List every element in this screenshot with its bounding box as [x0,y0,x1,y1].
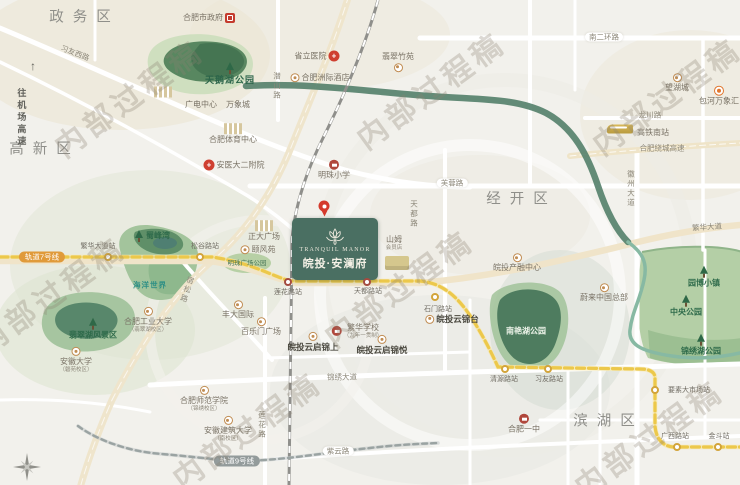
poi-hefei-sports-center: 合肥体育中心 [209,123,257,145]
poi-swan-lake-park: 天鹅湖公园 [205,62,255,86]
poi-anhui-university: 安徽大学（磬苑校区） [59,347,92,373]
road-lianhua-label: 莲花路 [258,411,267,440]
poi-hefei-sports-center-icon [224,123,242,134]
poi-shufengwan: 蜀峰湾 [134,230,170,242]
station-lianhua: 莲花路站 [274,289,302,297]
poi-shufengwan-icon [134,230,144,242]
poi-hefei-normal-university: 合肥师范学院（锦绣校区） [180,386,228,412]
district-gaoxin-label: 高新区 [0,141,80,158]
district-gaoxin: 高新区 [0,141,80,158]
poi-yuanbo-town-label: 园博小镇 [688,279,720,289]
poi-mingzhu-primary-school: 明珠小学 [318,160,350,181]
station-dot-tiandu [363,278,371,286]
poi-provincial-hospital-icon [329,51,340,62]
station-dot-qingyuan [501,365,509,373]
poi-hfut: 合肥工业大学（翡翠湖校区） [124,307,172,333]
station-dot-songgu [196,253,204,261]
poi-hfut-icon [144,307,153,316]
road-ziyun-label: 紫云路 [323,447,354,456]
poi-feicui-zhuyuan-label: 翡翠竹苑 [382,52,414,62]
poi-mingzhu-primary-school-icon [329,160,339,170]
poi-zhengda-plaza-icon [255,220,273,231]
station-dot-fanhua-dadao [104,253,112,261]
poi-hfut-sublabel: （翡翠湖校区） [129,327,168,334]
line7-badge: 轨道7号线 [19,252,65,263]
road-longchuan-label: 龙川路 [639,111,662,120]
poi-feicui-zhuyuan: 翡翠竹苑 [382,52,414,72]
poi-wantou-chanrong-center-icon [513,253,522,262]
sam-store [385,256,409,270]
station-guangxi: 广西路站 [661,433,689,441]
poi-wanghucheng: 望湖城 [665,73,689,93]
poi-central-park: 中央公园 [670,295,702,318]
road-jinxiu-ave-label: 锦绣大道 [327,373,357,382]
poi-hefei-no1-school-icon [519,414,529,424]
poi-hefei-sports-center-label: 合肥体育中心 [209,135,257,145]
station-qingyuan-label: 清源路站 [490,376,518,384]
poi-swan-lake-park-label: 天鹅湖公园 [205,75,255,86]
station-jindou-label: 金斗站 [709,433,730,441]
poi-guangdian-center-label: 广电中心 [185,100,217,110]
poi-mixc: 万象城 [226,100,250,110]
district-zhengwu-label: 政务区 [40,9,120,26]
poi-anhui-jianzhu-university-icon [224,416,233,425]
buildings [154,87,172,98]
station-songgu-label: 松谷路站 [191,243,219,251]
poi-hefei-normal-university-icon [200,386,209,395]
poi-feicui-zhuyuan-icon [394,63,403,72]
station-dot-xiyou [544,365,552,373]
station-songgu: 松谷路站 [191,243,219,251]
station-jindou: 金斗站 [709,433,730,441]
poi-hefei-no1-school: 合肥一中 [508,414,540,435]
road-huizhou-ave: 徽州大道 [627,170,636,208]
toward-airport-arrow: ↑ [30,59,36,73]
poi-nanyan-lake-park: 南艳湖公园 [506,326,546,337]
poi-bailemen-plaza-label: 百乐门广场 [241,327,281,337]
station-xiyou: 习友路站 [535,376,563,384]
poi-jinxiu-lake-park-icon [696,334,706,346]
poi-anhui-university-sublabel: （磬苑校区） [59,367,92,374]
poi-wantou-chanrong-center-label: 皖投产融中心 [493,263,541,273]
property-name-en: TRANQUIL MANOR [299,247,370,253]
district-jingkai-label: 经开区 [477,191,557,208]
station-tiandu-label: 天都路站 [354,288,382,296]
map-canvas[interactable]: TRANQUIL MANOR 皖投·安澜府 内部过程稿内部过程稿内部过程稿内部过… [0,0,740,485]
toward-airport-arrow-label: ↑ [30,59,36,73]
poi-anhui-university-label: 安徽大学 [60,357,92,367]
station-dot-guangxi [673,443,681,451]
road-nanerhuan: 南二环路 [585,33,623,42]
property-logo-icon [324,228,346,245]
train [607,125,633,134]
poi-bailemen-plaza: 百乐门广场 [241,317,281,337]
poi-sam-club-label: 山姆 [386,235,402,245]
poi-provincial-hospital: 省立医院 [295,51,340,62]
poi-bailemen-plaza-icon [257,317,266,326]
poi-mingzhu-plaza-park-label: 明珠广场公园 [228,260,267,268]
road-furong-label: 芙蓉路 [437,179,468,188]
poi-hefei-normal-university-sublabel: （锦绣校区） [187,406,220,413]
station-fanhua-dadao: 繁华大道站 [81,243,116,251]
poi-yunjintai: 皖投云锦台 [425,314,479,324]
poi-hefei-government: 合肥市政府 [183,13,235,23]
road-tiandu-label: 天都路 [410,200,419,229]
road-jinxiu-ave: 锦绣大道 [327,373,357,382]
poi-hefei-no1-school-label: 合肥一中 [508,425,540,435]
poi-hefei-normal-university-label: 合肥师范学院 [180,396,228,406]
poi-shufengwan-label: 蜀峰湾 [146,231,170,241]
poi-central-park-label: 中央公园 [670,308,702,318]
poi-nio-china-hq: 蔚来中国总部 [580,283,628,303]
poi-jinxiu-lake-park: 锦绣湖公园 [681,334,721,357]
poi-yunqi-jinyue: 皖投云启锦悦 [356,335,407,355]
station-dot-lianhua [284,278,292,286]
hefei-south-railway-station: 高铁南站 [637,128,669,138]
station-qingyuan: 清源路站 [490,376,518,384]
poi-anhui-university-icon [71,347,80,356]
poi-yifengyuan-label: 颐风苑 [252,245,276,255]
station-dot-jindou [714,443,722,451]
poi-swan-lake-park-icon [225,62,235,74]
poi-zhengda-plaza-label: 正大广场 [248,232,280,242]
poi-yifengyuan-icon [241,246,250,255]
poi-zhengda-plaza: 正大广场 [248,220,280,242]
poi-feicui-lake-scenic-label: 翡翠湖风景区 [69,331,117,341]
poi-nanyan-lake-park-label: 南艳湖公园 [506,327,546,337]
poi-hefei-government-icon [225,13,235,23]
poi-feicui-lake-scenic-icon [88,318,98,330]
poi-mingzhu-primary-school-label: 明珠小学 [318,171,350,181]
poi-hefei-government-label: 合肥市政府 [183,13,223,23]
poi-wantou-chanrong-center: 皖投产融中心 [493,253,541,273]
poi-intercontinental-hotel: 合肥洲际酒店 [291,73,350,83]
station-fanhua-dadao-label: 繁华大道站 [81,243,116,251]
line9-badge-label: 轨道9号线 [214,456,260,467]
toward-airport-expressway: 往机场高速 [16,88,27,148]
buildings-icon [154,87,172,98]
compass-icon [12,452,42,482]
poi-anhui-jianzhu-university-sublabel: （南校区） [214,436,242,443]
poi-anyida-2nd-hospital-icon [204,160,215,171]
poi-anhui-jianzhu-university: 安徽建筑大学（南校区） [204,416,252,442]
poi-intercontinental-hotel-icon [291,74,300,83]
road-ziyun: 紫云路 [323,447,354,456]
road-tiandu: 天都路 [410,200,419,229]
road-huizhou-ave-label: 徽州大道 [627,170,636,208]
poi-wanghucheng-icon [673,73,682,82]
poi-anyida-2nd-hospital-label: 安医大二附院 [217,160,265,170]
station-dot-shimen [431,293,439,301]
road-furong: 芙蓉路 [437,179,468,188]
poi-feicui-lake-scenic: 翡翠湖风景区 [69,318,117,341]
road-nanerhuan-label: 南二环路 [585,33,623,42]
poi-yunqi-jinyue-label: 皖投云启锦悦 [356,345,407,355]
road-qianshan: 潜山路 [273,72,282,101]
road-longchuan: 龙川路 [639,111,662,120]
poi-baohe-mixc-icon [714,86,724,96]
poi-sam-club: 山姆会员店 [386,235,403,251]
poi-mixc-label: 万象城 [226,100,250,110]
line9-badge: 轨道9号线 [214,456,260,467]
poi-baohe-mixc-label: 包河万象汇 [699,97,739,107]
location-pin [319,201,330,212]
poi-yuanbo-town-icon [699,266,709,278]
poi-guangdian-center: 广电中心 [185,100,217,110]
poi-yuanbo-town: 园博小镇 [688,266,720,289]
poi-hfut-label: 合肥工业大学 [124,317,172,327]
poi-nio-china-hq-icon [600,283,609,292]
poi-ocean-world: 海洋世界 [133,281,167,290]
poi-yunqi-jinyue-icon [377,335,386,344]
poi-fanhua-school-icon [332,326,342,336]
road-raocheng-expressway: 合肥绕城高速 [640,144,685,153]
poi-fanhua-school-label: 繁华学校 [347,323,379,333]
district-zhengwu: 政务区 [40,9,120,26]
poi-anhui-jianzhu-university-label: 安徽建筑大学 [204,426,252,436]
poi-mingzhu-plaza-park: 明珠广场公园 [228,260,267,268]
poi-ocean-world-label: 海洋世界 [133,281,167,290]
poi-sam-club-sublabel: 会员店 [386,245,403,252]
poi-yifengyuan: 颐风苑 [241,245,276,255]
poi-yunjintai-icon [425,315,434,324]
poi-nio-china-hq-label: 蔚来中国总部 [580,293,628,303]
poi-yunjintai-label: 皖投云锦台 [436,314,479,324]
poi-anyida-2nd-hospital: 安医大二附院 [204,160,265,171]
property-name-cn: 皖投·安澜府 [303,255,368,271]
road-lianhua: 莲花路 [258,411,267,440]
poi-wanghucheng-label: 望湖城 [665,83,689,93]
line7-badge-label: 轨道7号线 [19,252,65,263]
road-raocheng-expressway-label: 合肥绕城高速 [640,144,685,153]
station-tiandu: 天都路站 [354,288,382,296]
station-guangxi-label: 广西路站 [661,433,689,441]
district-binhu: 滨湖区 [564,413,644,430]
toward-airport-expressway-label: 往机场高速 [16,88,27,148]
poi-central-park-icon [681,295,691,307]
poi-baohe-mixc: 包河万象汇 [699,86,739,107]
poi-intercontinental-hotel-label: 合肥洲际酒店 [302,73,350,83]
property-card: TRANQUIL MANOR 皖投·安澜府 [292,218,378,280]
poi-jinxiu-lake-park-label: 锦绣湖公园 [681,347,721,357]
poi-yunqi-jinshang-label: 皖投云启锦上 [287,342,338,352]
station-lianhua-label: 莲花路站 [274,289,302,297]
station-xiyou-label: 习友路站 [535,376,563,384]
poi-yunqi-jinshang-icon [308,332,317,341]
poi-fengda-international-icon [234,300,243,309]
hefei-south-railway-station-label: 高铁南站 [637,128,669,138]
station-yaosu-market: 要素大市场站 [668,387,710,395]
road-qianshan-label: 潜山路 [273,72,282,101]
poi-provincial-hospital-label: 省立医院 [295,51,327,61]
station-yaosu-market-label: 要素大市场站 [668,387,710,395]
district-binhu-label: 滨湖区 [564,413,644,430]
district-jingkai: 经开区 [477,191,557,208]
station-dot-yaosu [651,386,659,394]
